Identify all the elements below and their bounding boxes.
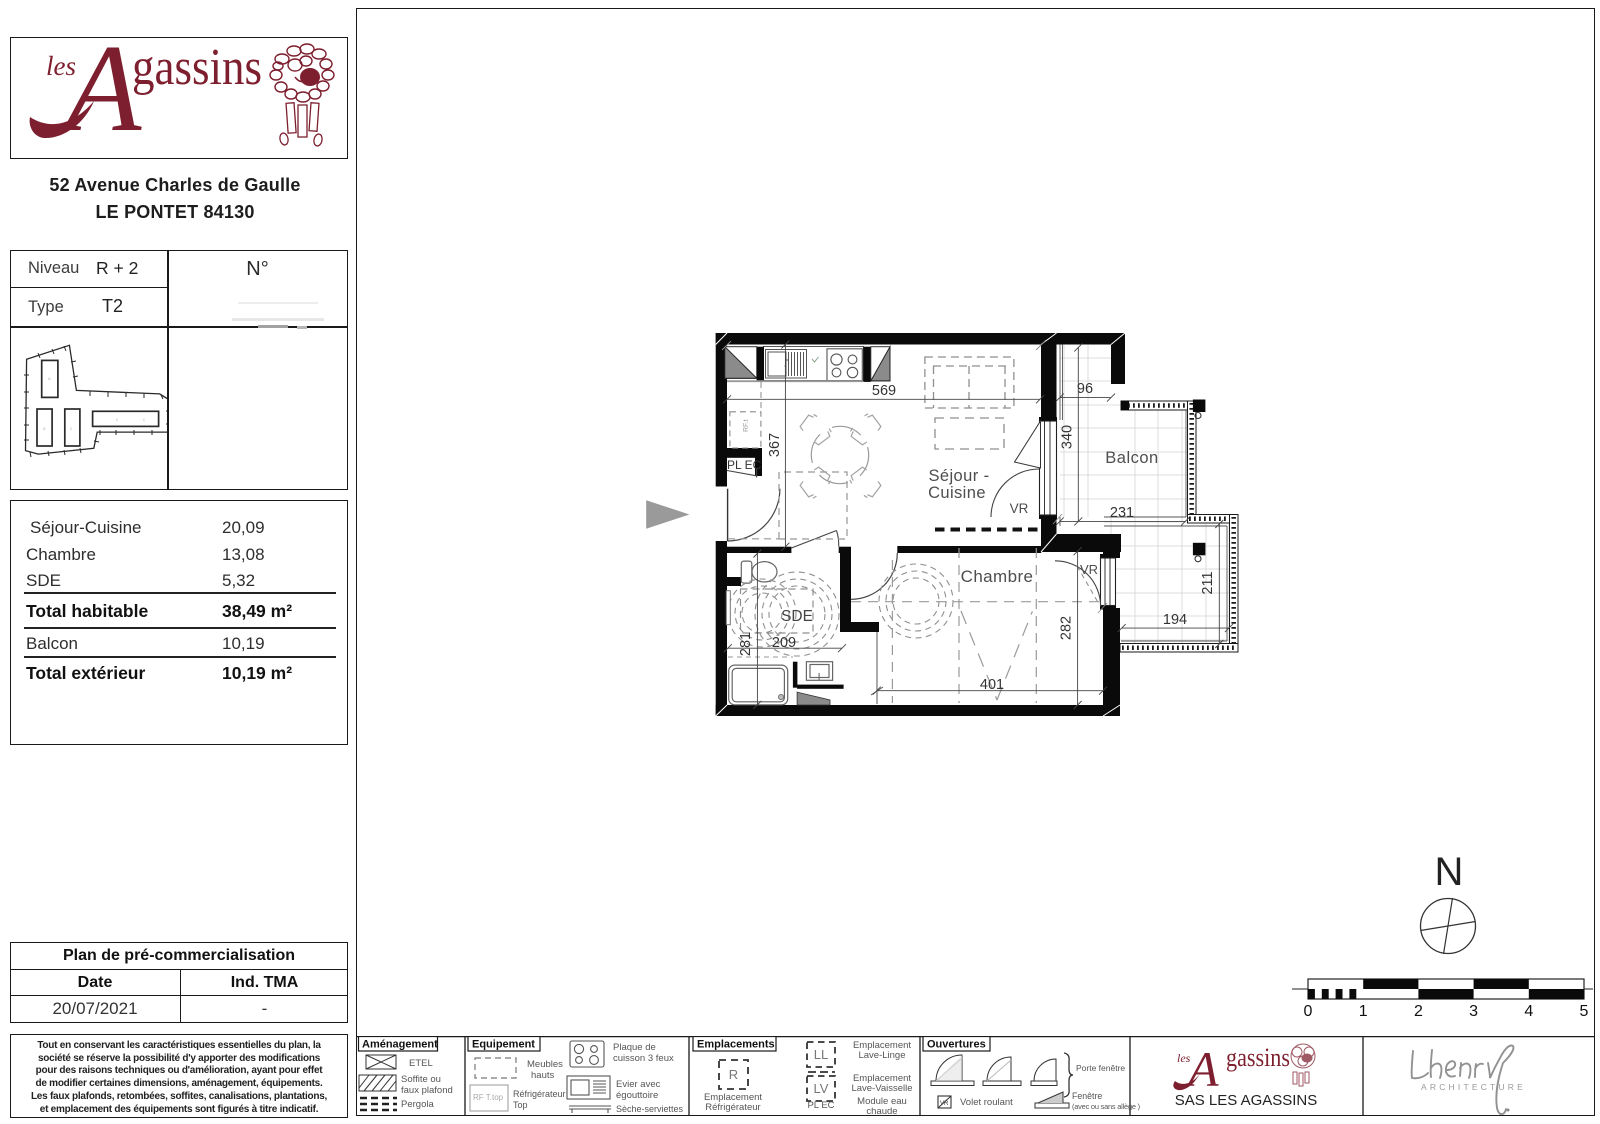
svg-text:N: N (1435, 850, 1464, 894)
svg-text:Cuisine: Cuisine (928, 484, 986, 502)
svg-text:Equipement: Equipement (472, 1039, 535, 1051)
svg-text:a: a (48, 376, 51, 381)
svg-text:Aménagement: Aménagement (362, 1039, 438, 1051)
svg-text:Top: Top (513, 1100, 528, 1110)
svg-text:Lave-Vaisselle: Lave-Vaisselle (851, 1083, 912, 1094)
svg-text:LV: LV (814, 1081, 829, 1096)
svg-text:Réfrigérateur: Réfrigérateur (513, 1089, 566, 1099)
svg-text:Ouvertures: Ouvertures (927, 1039, 986, 1051)
svg-text:Emplacements: Emplacements (697, 1039, 775, 1051)
svg-text:cuisson 3 feux: cuisson 3 feux (613, 1053, 674, 1064)
svg-text:367: 367 (767, 433, 783, 457)
svg-text:A: A (1185, 1041, 1219, 1097)
svg-text:2: 2 (1414, 1003, 1423, 1020)
svg-text:chaude: chaude (866, 1106, 897, 1116)
svg-text:282: 282 (1059, 616, 1075, 640)
svg-text:RF.t: RF.t (743, 420, 750, 433)
svg-text:96: 96 (1077, 381, 1093, 397)
svg-text:Réfrigérateur: Réfrigérateur (705, 1102, 760, 1113)
svg-text:194: 194 (1163, 612, 1187, 628)
svg-text:égouttoire: égouttoire (616, 1090, 658, 1101)
svg-text:Sèche-serviettes: Sèche-serviettes (616, 1104, 684, 1114)
svg-text:a: a (43, 426, 46, 431)
svg-text:LL: LL (814, 1047, 828, 1062)
svg-text:ETEL: ETEL (409, 1058, 433, 1069)
svg-text:Volet roulant: Volet roulant (960, 1097, 1013, 1108)
svg-text:VR: VR (940, 1101, 949, 1107)
svg-text:569: 569 (872, 383, 896, 399)
svg-text:ARCHITECTURE: ARCHITECTURE (1421, 1082, 1526, 1092)
svg-text:c: c (70, 426, 73, 431)
svg-text:3: 3 (1469, 1003, 1478, 1020)
svg-text:gassins: gassins (132, 39, 262, 96)
svg-text:faux plafond: faux plafond (401, 1085, 453, 1096)
svg-text:hauts: hauts (531, 1070, 554, 1081)
svg-text:PL EC: PL EC (807, 1100, 834, 1111)
svg-text:Pergola: Pergola (401, 1099, 434, 1110)
svg-text:VR: VR (1080, 562, 1098, 577)
svg-text:4: 4 (1524, 1003, 1533, 1020)
svg-text:Meubles: Meubles (527, 1059, 563, 1070)
svg-text:209: 209 (772, 635, 796, 651)
svg-text:RF T.top: RF T.top (473, 1093, 504, 1102)
svg-text:SDE: SDE (781, 608, 813, 625)
svg-text:Porte fenêtre: Porte fenêtre (1076, 1063, 1125, 1073)
svg-text:gassins: gassins (1226, 1043, 1290, 1072)
svg-text:5: 5 (1580, 1003, 1589, 1020)
svg-text:401: 401 (980, 677, 1004, 693)
svg-text:231: 231 (1110, 505, 1134, 521)
svg-text:c: c (143, 417, 146, 422)
svg-text:A: A (58, 37, 142, 158)
svg-text:VR: VR (1010, 501, 1029, 516)
svg-text:0: 0 (1304, 1003, 1313, 1020)
svg-text:SAS LES AGASSINS: SAS LES AGASSINS (1175, 1092, 1318, 1109)
svg-text:Soffite ou: Soffite ou (401, 1074, 441, 1085)
svg-text:R: R (729, 1067, 738, 1082)
svg-text:Balcon: Balcon (1105, 449, 1158, 467)
svg-text:Fenêtre: Fenêtre (1072, 1091, 1102, 1101)
svg-text:Plaque de: Plaque de (613, 1042, 656, 1053)
svg-text:211: 211 (1200, 571, 1216, 594)
svg-text:(avec ou sans allège ): (avec ou sans allège ) (1072, 1102, 1140, 1111)
svg-text:Séjour -: Séjour - (929, 467, 990, 485)
svg-text:1: 1 (1359, 1003, 1368, 1020)
svg-text:340: 340 (1060, 425, 1076, 449)
svg-text:281: 281 (738, 632, 754, 656)
svg-text:Chambre: Chambre (961, 567, 1034, 586)
svg-text:c: c (116, 417, 119, 422)
svg-text:Lave-Linge: Lave-Linge (858, 1050, 905, 1061)
svg-text:Evier avec: Evier avec (616, 1079, 661, 1090)
